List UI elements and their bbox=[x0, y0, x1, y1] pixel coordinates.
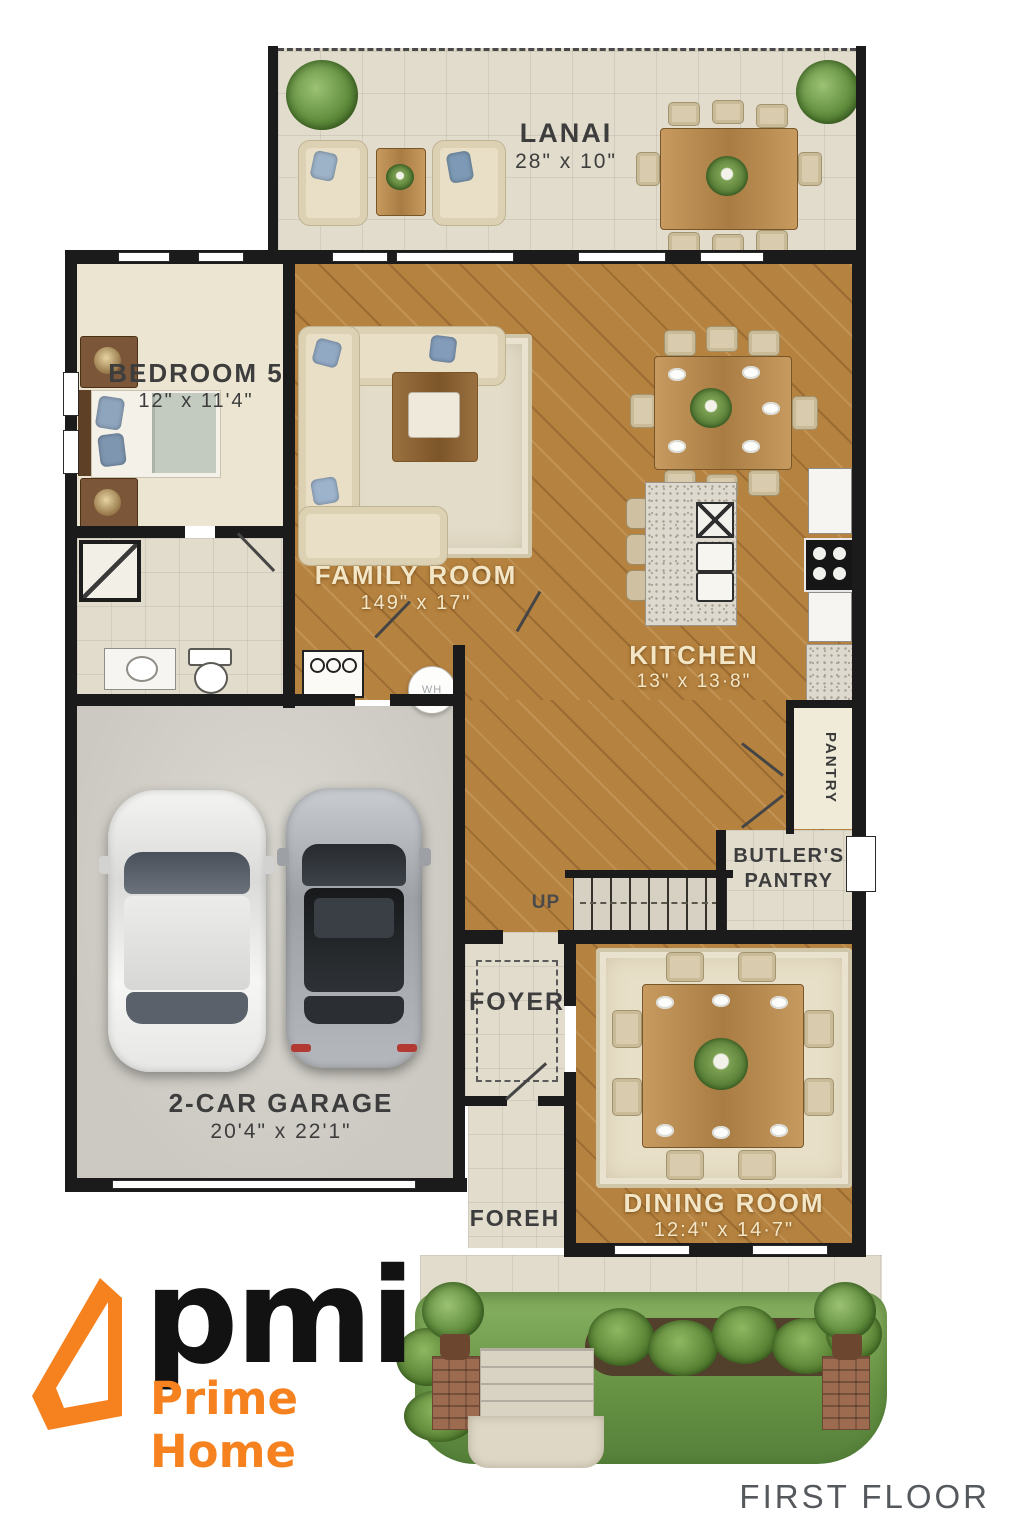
plate bbox=[762, 402, 780, 415]
car-glass-roof bbox=[304, 888, 404, 992]
car-mirror bbox=[277, 848, 289, 866]
nook-chair bbox=[664, 330, 696, 356]
plate bbox=[742, 440, 760, 453]
wall bbox=[558, 930, 865, 944]
island-fixture bbox=[696, 542, 734, 572]
floor-title: FIRST FLOOR bbox=[739, 1478, 990, 1516]
room-label-pantry: PANTRY bbox=[822, 716, 839, 820]
car-mirror bbox=[99, 856, 111, 874]
water-heater-icon: WH bbox=[408, 666, 456, 714]
pmi-logo-subtext: Prime Home bbox=[150, 1372, 422, 1478]
room-dims-bedroom5: 12" x 11'4" bbox=[138, 390, 253, 413]
wall bbox=[565, 870, 733, 878]
pillow bbox=[310, 476, 340, 506]
window bbox=[332, 252, 388, 262]
room-label-butlers-2: PANTRY bbox=[745, 870, 834, 893]
stair-direction-line bbox=[580, 902, 718, 904]
sectional-sofa bbox=[298, 506, 448, 566]
plate bbox=[712, 994, 730, 1007]
kitchen-counter bbox=[808, 592, 852, 642]
bath-sink-icon bbox=[126, 656, 158, 682]
pillow bbox=[446, 150, 475, 184]
pillow bbox=[95, 395, 126, 431]
coffee-table-tray bbox=[408, 392, 460, 438]
car-rear-window bbox=[304, 996, 404, 1024]
dining-chair bbox=[666, 1150, 704, 1180]
room-label-bedroom5: BEDROOM 5 bbox=[108, 358, 283, 389]
pmi-logo: pmi Prime Home bbox=[22, 1262, 422, 1432]
wall bbox=[390, 694, 465, 706]
pillow bbox=[429, 335, 458, 364]
wall bbox=[786, 700, 866, 708]
planter-pot bbox=[832, 1334, 862, 1360]
window bbox=[752, 1245, 828, 1255]
bush bbox=[648, 1320, 718, 1376]
pillow bbox=[97, 433, 127, 468]
car-taillight bbox=[291, 1044, 311, 1052]
island-sink-icon bbox=[696, 502, 734, 538]
car-rear-window bbox=[126, 992, 248, 1024]
potted-plant-icon bbox=[796, 60, 860, 124]
window bbox=[63, 372, 79, 416]
car-mirror bbox=[419, 848, 431, 866]
car-windshield bbox=[124, 852, 250, 894]
dining-chair bbox=[804, 1078, 834, 1116]
room-label-foyer: FOYER bbox=[469, 988, 565, 1017]
wall bbox=[65, 250, 77, 712]
wall bbox=[465, 1096, 507, 1106]
flower-centerpiece-icon bbox=[706, 156, 748, 196]
flower-centerpiece-icon bbox=[694, 1038, 748, 1090]
wall bbox=[786, 704, 794, 834]
dining-chair bbox=[738, 1150, 776, 1180]
window bbox=[700, 252, 764, 262]
toilet-icon bbox=[194, 662, 228, 694]
staircase bbox=[573, 876, 727, 934]
utility-panel bbox=[302, 650, 364, 698]
plate bbox=[656, 996, 674, 1009]
car-white bbox=[108, 790, 266, 1072]
floor-plan: WH bbox=[0, 0, 1024, 1536]
dining-chair bbox=[738, 952, 776, 982]
car-windshield bbox=[302, 844, 406, 886]
flower-centerpiece-icon bbox=[386, 164, 414, 190]
room-label-family: FAMILY ROOM bbox=[315, 560, 518, 591]
dining-chair bbox=[804, 1010, 834, 1048]
potted-plant-icon bbox=[286, 60, 358, 130]
lanai-chair bbox=[636, 152, 660, 186]
nook-chair bbox=[706, 326, 738, 352]
wall bbox=[65, 700, 77, 1192]
plate bbox=[668, 440, 686, 453]
dining-chair bbox=[666, 952, 704, 982]
wall bbox=[453, 930, 503, 944]
front-steps bbox=[480, 1348, 594, 1418]
car-mirror bbox=[263, 856, 275, 874]
nook-chair bbox=[630, 394, 656, 428]
lanai-chair bbox=[756, 104, 788, 128]
wall bbox=[268, 46, 278, 254]
sliding-door bbox=[578, 252, 666, 262]
room-dims-dining: 12:4" x 14·7" bbox=[654, 1219, 794, 1242]
potted-plant-icon bbox=[422, 1282, 484, 1340]
stove-icon bbox=[804, 538, 858, 592]
nook-chair bbox=[748, 470, 780, 496]
kitchen-counter-granite bbox=[806, 644, 854, 708]
nook-chair bbox=[748, 330, 780, 356]
car-taillight bbox=[397, 1044, 417, 1052]
room-label-dining: DINING ROOM bbox=[623, 1188, 824, 1219]
plate bbox=[668, 368, 686, 381]
lanai-chair bbox=[798, 152, 822, 186]
window bbox=[63, 430, 79, 474]
pmi-logo-icon bbox=[22, 1274, 140, 1432]
island-fixture bbox=[696, 572, 734, 602]
room-label-butlers-1: BUTLER'S bbox=[733, 845, 844, 868]
stairs-up-label: UP bbox=[532, 892, 560, 914]
lamp-icon bbox=[94, 489, 121, 516]
wall bbox=[65, 526, 185, 538]
planter-pot bbox=[440, 1334, 470, 1360]
kitchen-counter bbox=[808, 468, 852, 534]
window bbox=[118, 252, 170, 262]
plate bbox=[742, 366, 760, 379]
car-roof bbox=[124, 896, 250, 990]
garage-door bbox=[112, 1180, 416, 1189]
room-label-kitchen: KITCHEN bbox=[629, 640, 759, 671]
nook-chair bbox=[792, 396, 818, 430]
bush bbox=[588, 1308, 654, 1366]
wall bbox=[65, 694, 355, 706]
lanai-chair bbox=[668, 102, 700, 126]
front-walkway bbox=[468, 1416, 604, 1468]
lanai-chair bbox=[712, 100, 744, 124]
shower bbox=[79, 540, 141, 602]
window bbox=[614, 1245, 690, 1255]
car-silver bbox=[286, 788, 422, 1068]
dining-chair bbox=[612, 1010, 642, 1048]
brick-pillar bbox=[822, 1356, 870, 1430]
window bbox=[846, 836, 876, 892]
bed-headboard bbox=[78, 390, 91, 476]
bush bbox=[712, 1306, 778, 1364]
wall bbox=[852, 250, 866, 1257]
room-label-lanai: LANAI bbox=[520, 118, 613, 149]
plate bbox=[656, 1124, 674, 1137]
plate bbox=[770, 1124, 788, 1137]
plate bbox=[712, 1126, 730, 1139]
window bbox=[198, 252, 244, 262]
wall bbox=[564, 930, 576, 1006]
potted-plant-icon bbox=[814, 1282, 876, 1340]
sliding-door bbox=[396, 252, 514, 262]
room-dims-lanai: 28" x 10" bbox=[515, 150, 617, 174]
room-label-garage: 2-CAR GARAGE bbox=[169, 1088, 394, 1119]
wall bbox=[716, 830, 726, 936]
room-dims-garage: 20'4" x 22'1" bbox=[210, 1120, 351, 1144]
wall bbox=[283, 250, 295, 708]
room-dims-family: 149" x 17" bbox=[361, 592, 472, 615]
flower-centerpiece-icon bbox=[690, 388, 732, 428]
wall bbox=[453, 645, 465, 1192]
dining-chair bbox=[612, 1078, 642, 1116]
room-dims-kitchen: 13" x 13·8" bbox=[637, 671, 752, 693]
wall bbox=[538, 1096, 568, 1106]
pmi-logo-text: pmi bbox=[144, 1240, 412, 1394]
room-label-porch: FOREH bbox=[470, 1205, 561, 1232]
wall bbox=[856, 46, 866, 254]
wall bbox=[215, 526, 295, 538]
plate bbox=[770, 996, 788, 1009]
